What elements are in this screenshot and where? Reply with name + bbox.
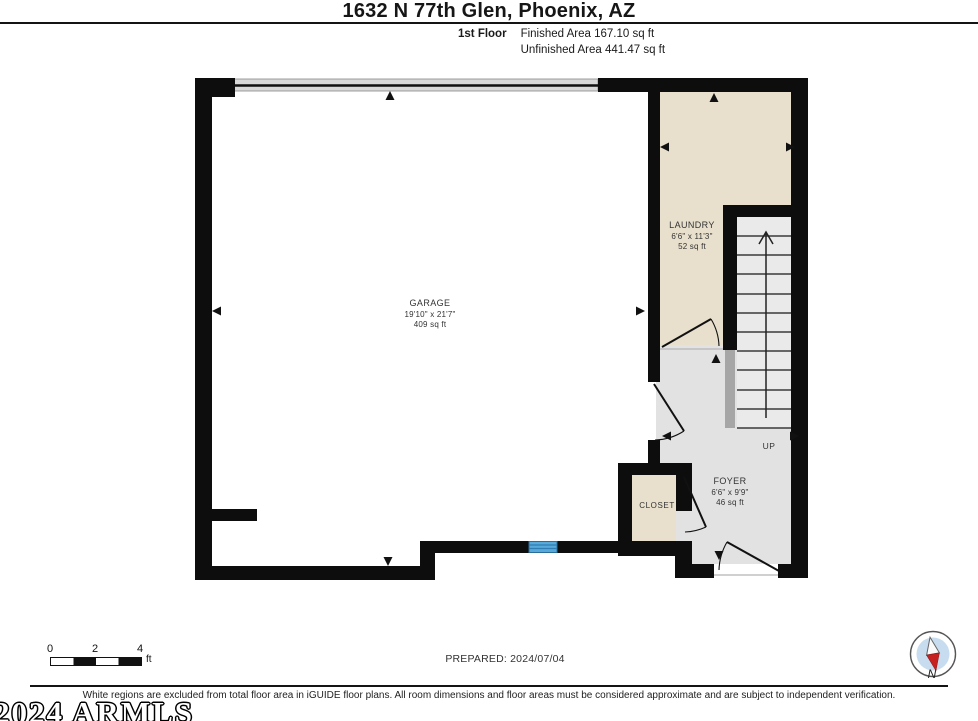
prepared-date: PREPARED: 2024/07/04: [445, 653, 564, 665]
bottom-divider: [30, 685, 948, 687]
floorplan-drawing: [0, 0, 978, 721]
stairs-half-wall: [725, 350, 735, 428]
compass-north-label: N: [928, 667, 937, 681]
armls-watermark: 2024 ARMLS: [0, 695, 194, 721]
garage-area: 409 sq ft: [404, 320, 455, 330]
laundry-dimensions: 6'6" x 11'3": [669, 232, 715, 242]
foyer-dimensions: 6'6" x 9'9": [711, 488, 748, 498]
garage-name: GARAGE: [404, 298, 455, 310]
garage-dimensions: 19'10" x 21'7": [404, 310, 455, 320]
garage-label: GARAGE 19'10" x 21'7" 409 sq ft: [404, 298, 455, 330]
stairs-up-label: UP: [763, 441, 776, 451]
foyer-area: 46 sq ft: [711, 498, 748, 508]
window: [529, 542, 557, 553]
scale-tick-4: 4: [137, 643, 143, 655]
laundry-label: LAUNDRY 6'6" x 11'3" 52 sq ft: [669, 220, 715, 252]
scale-tick-2: 2: [92, 643, 98, 655]
laundry-area: 52 sq ft: [669, 242, 715, 252]
foyer-name: FOYER: [711, 476, 748, 488]
closet-label: CLOSET: [639, 501, 675, 510]
laundry-name: LAUNDRY: [669, 220, 715, 232]
scale-bar: [50, 657, 142, 666]
floorplan-page: 1632 N 77th Glen, Phoenix, AZ 1st Floor …: [0, 0, 978, 721]
scale-unit: ft: [146, 654, 152, 665]
scale-tick-0: 0: [47, 643, 53, 655]
foyer-label: FOYER 6'6" x 9'9" 46 sq ft: [711, 476, 748, 508]
garage-door: [233, 79, 598, 91]
